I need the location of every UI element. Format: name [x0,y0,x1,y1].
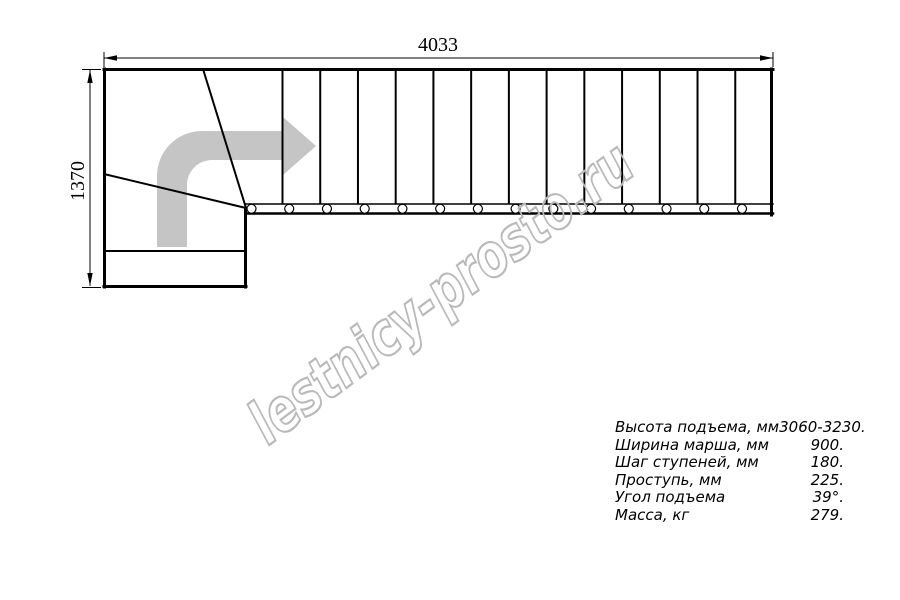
spec-row: Масса, кг279. [615,507,844,525]
spec-value: 900. [811,437,844,455]
bolt-circle [737,204,746,213]
spec-row: Шаг ступеней, мм180. [615,454,844,472]
bolt-circle [700,204,709,213]
direction-arrow [157,117,316,247]
spec-value: 279. [811,507,844,525]
spec-label: Высота подъема, мм [615,419,779,437]
spec-label: Шаг ступеней, мм [615,454,759,472]
spec-value: 225. [811,472,844,490]
spec-row: Высота подъема, мм3060-3230. [615,419,844,437]
spec-value: 39°. [813,489,844,507]
bolt-circle [398,204,407,213]
bolt-circle [285,204,294,213]
watermark-text: lestnicy-prosto.ru [235,128,646,458]
length-dimension-label: 4033 [418,34,458,56]
width-arrow-down-icon [87,273,92,286]
spec-table: Высота подъема, мм3060-3230.Ширина марша… [615,419,844,525]
spec-row: Ширина марша, мм900. [615,437,844,455]
spec-label: Угол подъема [615,489,725,507]
stair-plan-page: 4033 1370 lestnicy-prosto.ru Высота подъ… [0,0,900,600]
bolt-circle [436,204,445,213]
spec-label: Ширина марша, мм [615,437,769,455]
width-arrow-up-icon [87,70,92,83]
width-dimension: 1370 [67,70,101,288]
spec-label: Масса, кг [615,507,689,525]
length-dimension: 4033 [104,34,773,67]
bolt-circle [322,204,331,213]
bolt-circle [473,204,482,213]
width-dimension-label: 1370 [67,161,89,201]
direction-arrow-shape [157,117,316,247]
bolt-circle [360,204,369,213]
step-divider-lines [283,69,736,204]
length-arrow-left-icon [104,55,117,60]
spec-row: Проступь, мм225. [615,472,844,490]
spec-row: Угол подъема39°. [615,489,844,507]
bolt-circle [247,204,256,213]
bolt-circle [662,204,671,213]
spec-value: 180. [811,454,844,472]
spec-value: 3060-3230. [779,419,866,437]
bolt-circle [624,204,633,213]
spec-label: Проступь, мм [615,472,722,490]
length-arrow-right-icon [760,55,773,60]
